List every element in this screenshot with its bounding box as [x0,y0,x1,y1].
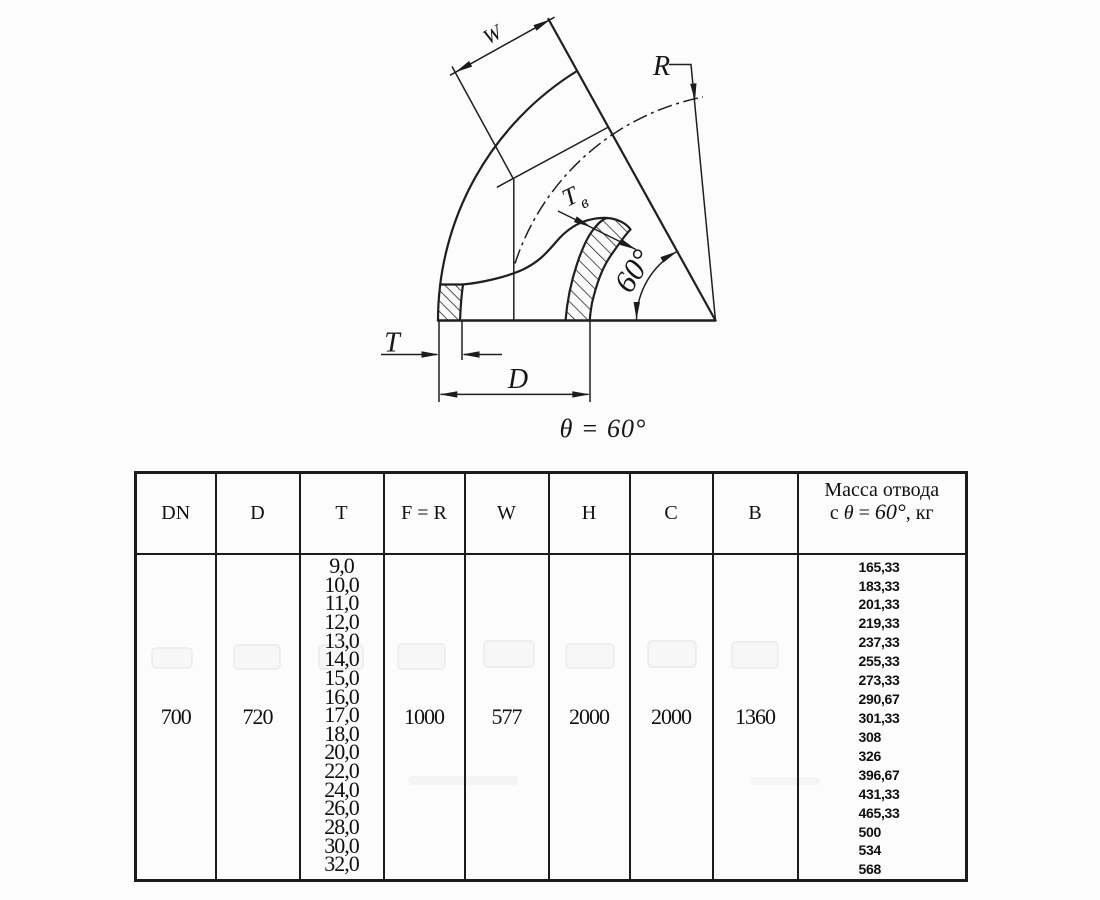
svg-text:D: D [507,364,528,395]
svg-text:θ = 60°: θ = 60° [560,414,647,443]
svg-text:Tв: Tв [558,179,592,219]
svg-text:T: T [384,328,402,359]
svg-text:R: R [652,51,670,82]
